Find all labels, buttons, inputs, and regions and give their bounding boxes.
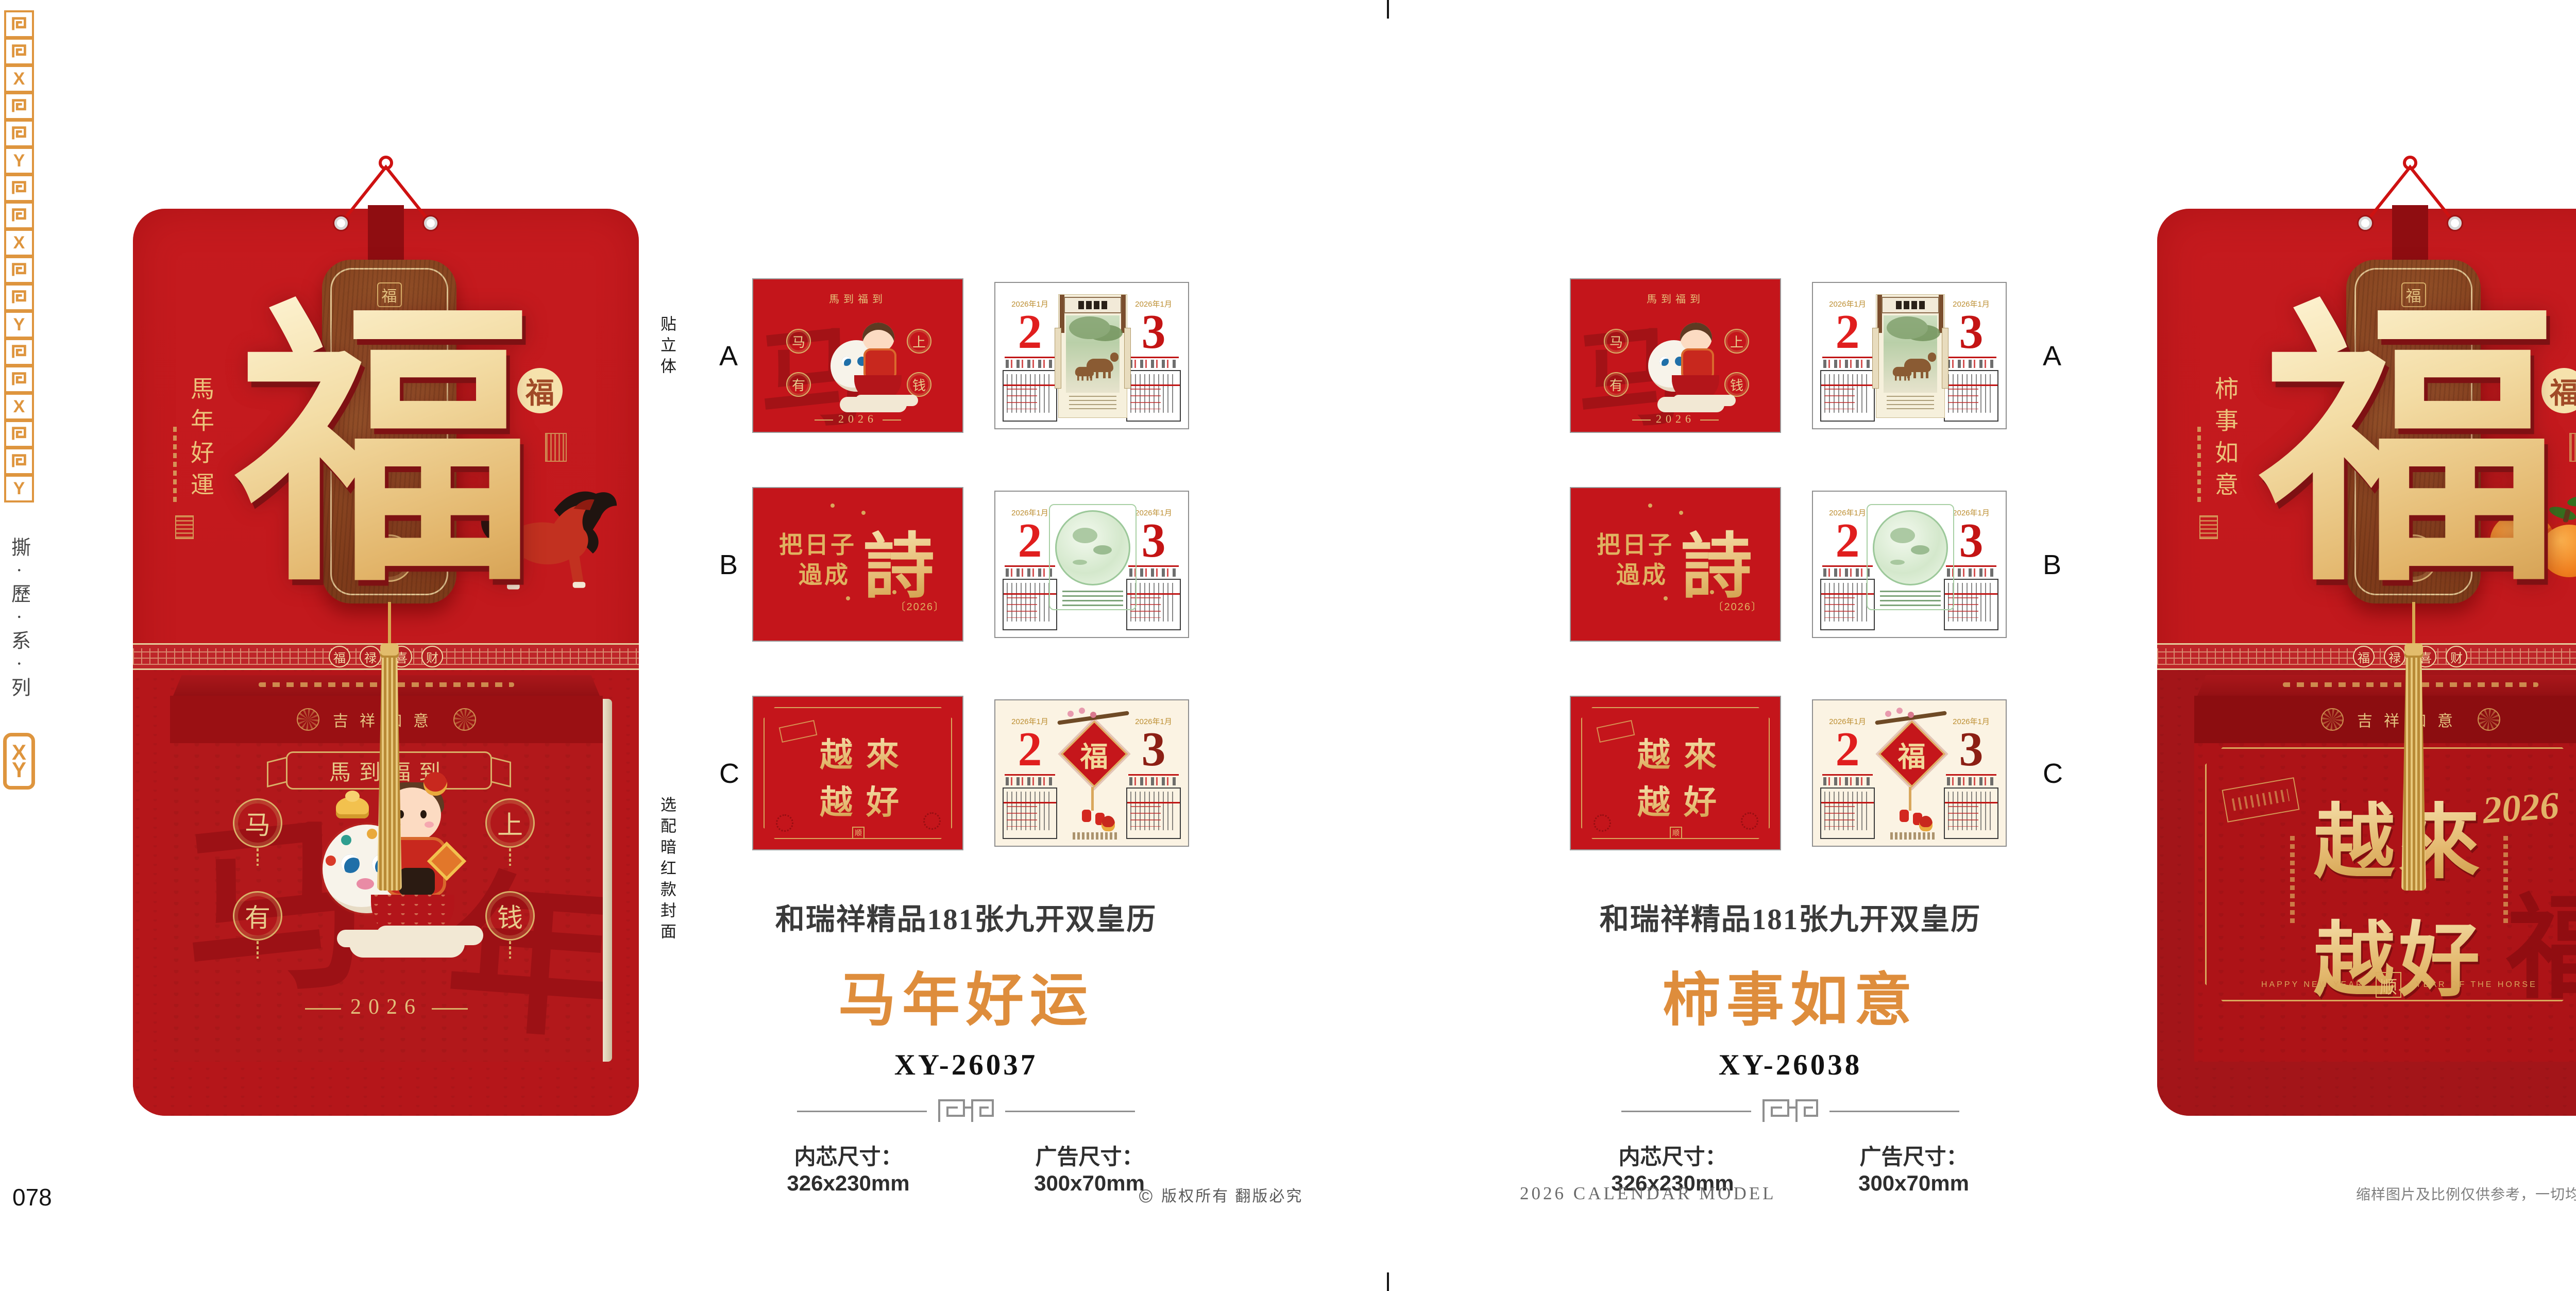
side-seal (2199, 515, 2218, 539)
product-series: 和瑞祥精品181张九开双皇历 (739, 896, 1193, 938)
thumb-cover-a: 马 馬到福到 马 上 有 钱 2026 (752, 278, 963, 433)
pattern-tile-maze-icon (4, 256, 34, 284)
label-cover-option: 选配暗红款封面 (655, 796, 679, 944)
gold-tassel (2398, 602, 2429, 897)
box-lid-top (2197, 675, 2576, 696)
year-label: 2026 (2481, 784, 2561, 833)
coin-medallion: 钱 (485, 891, 535, 941)
pattern-tile-maze-icon (4, 365, 34, 393)
thumb-cover-a: 马 馬到福到 马 上 有 钱 2026 (1570, 278, 1781, 433)
product-info-right: 和瑞祥精品181张九开双皇历 柿事如意 XY-26038 内芯尺寸：326x23… (1564, 896, 2017, 1196)
calendar-pad-box: 吉祥如意 福 2026 越來 越好 顺 HAPPY NEW YEAR YEAR … (2194, 675, 2576, 1062)
coin-medallion: 有 (233, 891, 282, 941)
painting-panel (1058, 294, 1127, 418)
divider (1564, 1095, 2017, 1127)
catalog-spread: XYXYXY 撕·歷·系·列 X Y XYXYXY 撕·歷·系·列 X Y 福 … (0, 0, 2576, 1291)
copyright-icon: © (1139, 1185, 1155, 1206)
thumb-page-b: 2026年1月 2 2026年1月 3 (994, 491, 1189, 638)
pattern-tile-maze-icon (4, 38, 34, 65)
fu-character: 福 (210, 271, 561, 642)
divider-ornament (935, 1095, 997, 1127)
product-info-left: 和瑞祥精品181张九开双皇历 马年好运 XY-26037 内芯尺寸：326x23… (739, 896, 1193, 1196)
side-seal (175, 515, 194, 539)
product-model: XY-26038 (1564, 1048, 2017, 1082)
lid-ornament (297, 708, 319, 731)
product-series: 和瑞祥精品181张九开双皇历 (1564, 896, 2017, 938)
thumb-cover-c: 越來 越好 顺 (752, 696, 963, 850)
thumb-page-b: 2026年1月 2 2026年1月 3 (1812, 491, 2007, 638)
style-letter-b: B (2043, 549, 2061, 581)
eyelet-right (2448, 216, 2462, 230)
thumb-page-c: 2026年1月 2 2026年1月 3 福 (994, 699, 1189, 847)
pattern-tile-maze-icon (4, 447, 34, 475)
style-letter-a: A (719, 340, 738, 372)
arc-banner-text: 馬到福到 (753, 291, 962, 306)
english-left: HAPPY NEW YEAR (2261, 980, 2364, 990)
pattern-tile-maze-icon (4, 338, 34, 366)
side-microtext (2197, 427, 2201, 504)
series-label: 撕·歷·系·列 (5, 537, 33, 707)
green-caption (1062, 591, 1123, 609)
xy-logo: X Y (3, 733, 35, 790)
crop-mark-top (1387, 0, 1389, 19)
fu-character: 福 (2234, 271, 2576, 642)
box-lid-front: 吉祥如意 (2194, 696, 2576, 743)
decorative-band: 福 禄 喜 财 (2157, 643, 2576, 670)
page-stack-edge (603, 699, 612, 1062)
coin-medallion: 马 (233, 798, 282, 848)
watermark-char: 年 (440, 815, 603, 1062)
footer-disclaimer: 缩样图片及比例仅供参考，一切均以正式样本为实。 (2308, 1183, 2576, 1204)
thumb-page-c: 2026年1月 2 2026年1月 3 福 (1812, 699, 2007, 847)
eyelet-left (334, 216, 348, 230)
product-name: 柿事如意 (1564, 953, 2017, 1037)
copyright: ©版权所有 翻版必究 (1113, 1183, 1329, 1207)
hanging-string (133, 155, 639, 278)
pattern-tile-maze-icon (4, 174, 34, 202)
eyelet-right (424, 216, 437, 230)
pattern-tile-letter: X (4, 65, 34, 93)
pattern-tile-maze-icon (4, 202, 34, 229)
lid-ornament (453, 708, 476, 731)
thumb-cover-b: 把日子 過成 詩 〔2026〕 (1570, 487, 1781, 642)
thumb-cover-b: 把日子 過成 詩 〔2026〕 (752, 487, 963, 642)
page-number-left: 078 (12, 1183, 52, 1211)
crop-mark-bottom (1387, 1272, 1389, 1291)
year-label: 2026 (170, 995, 603, 1019)
divider-ornament (1759, 1095, 1821, 1127)
style-letter-c: C (719, 758, 739, 790)
thumb-page-a: 2026年1月 2 2026年1月 3 (994, 282, 1189, 429)
pattern-tile-letter: Y (4, 147, 34, 175)
product-name: 马年好运 (739, 953, 1193, 1037)
side-microtext (173, 427, 177, 504)
coin-medallion: 上 (485, 798, 535, 848)
pattern-tile-letter: X (4, 229, 34, 257)
calendar-product-right: 福 禄 喜 财 福 福 福 柿事如意 福 (2157, 155, 2576, 1116)
style-letter-b: B (719, 549, 738, 581)
spec-ad-size: 广告尺寸：300x70mm (1810, 1139, 2017, 1196)
eyelet-left (2359, 216, 2372, 230)
pattern-tile-letter: X (4, 393, 34, 421)
seal-shun: 顺 (2376, 972, 2401, 998)
label-3d-sticker: 贴立体 (655, 315, 679, 379)
pattern-tile-maze-icon (4, 120, 34, 147)
product-model: XY-26037 (739, 1048, 1193, 1082)
pattern-tile-maze-icon (4, 283, 34, 311)
pattern-tile-maze-icon (4, 420, 34, 448)
slogan-characters: 越來 越好 (2312, 776, 2482, 962)
band-medallion: 财 (421, 646, 443, 667)
divider (739, 1095, 1193, 1127)
painting-panel (1876, 294, 1945, 418)
thumb-cover-c: 越來 越好 顺 (1570, 696, 1781, 850)
footer-center-title: 2026 CALENDAR MODEL (1520, 1183, 1776, 1204)
calendar-product-left: 福 禄 喜 财 福 福 福 馬年好運 福 (133, 155, 639, 1116)
band-medallion: 福 (329, 646, 350, 667)
pattern-tile-letter: Y (4, 475, 34, 502)
thumb-page-a: 2026年1月 2 2026年1月 3 (1812, 282, 2007, 429)
style-letter-a: A (2043, 340, 2061, 372)
border-pattern: XYXYXY (3, 10, 35, 502)
pattern-tile-letter: Y (4, 311, 34, 339)
spec-core-size: 内芯尺寸：326x230mm (739, 1139, 957, 1196)
box-face-artwork: 福 2026 越來 越好 顺 HAPPY NEW YEAR YEAR OF TH… (2194, 743, 2576, 1062)
english-right: YEAR OF THE HORSE (2416, 980, 2537, 990)
xy-logo-y: Y (12, 761, 26, 779)
brand-rail-left: XYXYXY 撕·歷·系·列 X Y (3, 10, 35, 794)
fu-ornament: 福 (1061, 720, 1128, 787)
style-letter-c: C (2043, 758, 2063, 790)
pattern-tile-maze-icon (4, 92, 34, 120)
pattern-tile-maze-icon (4, 10, 34, 38)
landscape-circle (1055, 510, 1130, 585)
gold-tassel (374, 602, 405, 897)
year-label: 2026 (753, 412, 962, 426)
